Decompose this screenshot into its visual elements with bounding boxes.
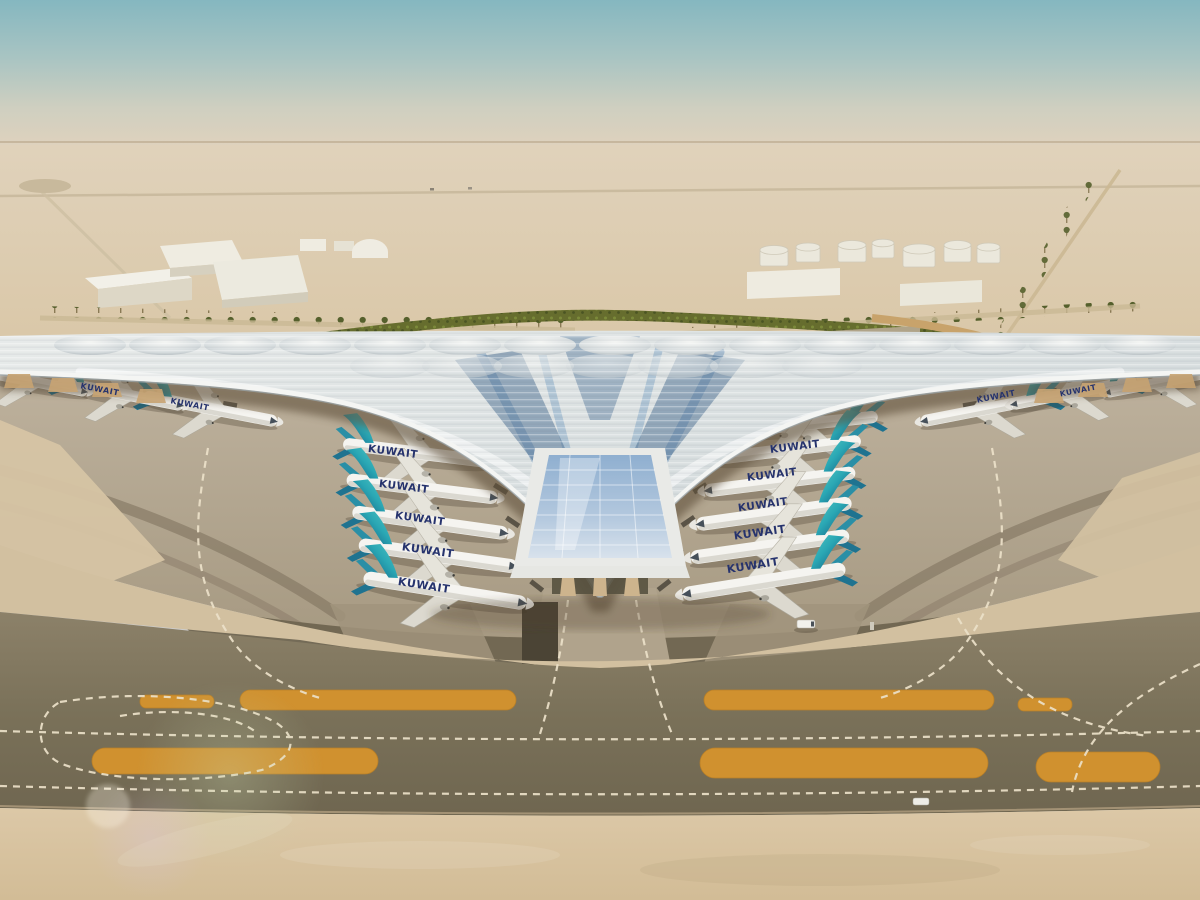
entrance-columns — [560, 578, 640, 596]
scene-root: KUWAIT KUWAIT KUWAIT KUWAIT KUWAIT KUWAI… — [0, 0, 1200, 900]
airport-rendering: KUWAIT KUWAIT KUWAIT KUWAIT KUWAIT KUWAI… — [0, 0, 1200, 900]
central-prow — [510, 448, 690, 596]
horizon-road — [0, 141, 1200, 143]
service-vehicle — [913, 798, 929, 805]
road-interchange — [19, 179, 71, 193]
sky — [0, 0, 1200, 150]
